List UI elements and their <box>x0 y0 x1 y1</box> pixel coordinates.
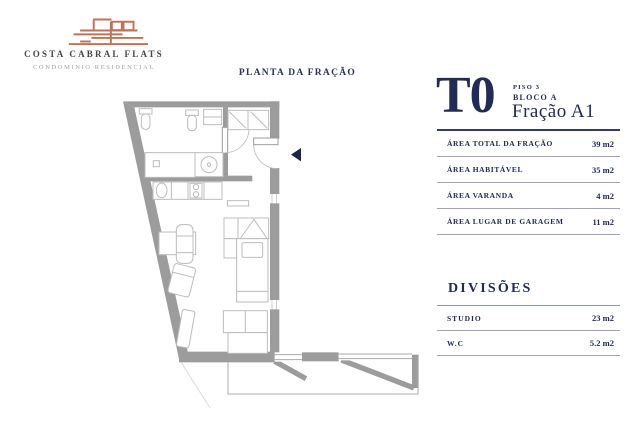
division-value: 23 m2 <box>592 313 614 323</box>
entrance-arrow-icon <box>291 148 301 161</box>
table-row: ÁREA LUGAR DE GARAGEM 11 m2 <box>437 209 620 235</box>
toilet <box>139 109 152 130</box>
unit-type: T0 <box>436 72 495 120</box>
unit-floor: PISO 3 <box>513 84 540 91</box>
radiator <box>227 201 248 206</box>
site-line <box>181 363 210 408</box>
vanity-counter <box>145 153 195 178</box>
table-row: ÁREA HABITÁVEL 35 m2 <box>437 157 620 183</box>
area-label: ÁREA VARANDA <box>447 191 514 200</box>
bed-wardrobe <box>224 218 269 239</box>
bidet <box>186 110 199 131</box>
washing-machine <box>195 153 223 177</box>
divisions-title: DIVISÕES <box>448 281 533 297</box>
area-value: 39 m2 <box>592 139 614 149</box>
table-row: STUDIO 23 m2 <box>437 306 620 331</box>
chair <box>167 263 196 297</box>
wardrobe <box>228 110 269 129</box>
table-row: W.C 5.2 m2 <box>437 331 620 356</box>
windows <box>269 194 412 362</box>
sofa <box>223 311 267 354</box>
brand-tagline: CONDOMINIO RESIDENCIAL <box>18 64 170 71</box>
division-label: STUDIO <box>447 314 482 323</box>
flyer-page: COSTA CABRAL FLATS CONDOMINIO RESIDENCIA… <box>0 0 640 426</box>
unit-fraction: Fração A1 <box>512 101 595 123</box>
nightstand <box>224 239 237 258</box>
division-label: W.C <box>447 339 464 348</box>
armchair <box>176 225 193 264</box>
entry-door <box>254 138 278 169</box>
table-row: ÁREA VARANDA 4 m2 <box>437 183 620 209</box>
area-label: ÁREA TOTAL DA FRAÇÃO <box>447 139 553 148</box>
area-value: 11 m2 <box>593 217 615 227</box>
brand-name: COSTA CABRAL FLATS <box>18 49 170 59</box>
divisions-table: STUDIO 23 m2 W.C 5.2 m2 <box>437 305 620 356</box>
plan-title: PLANTA DA FRAÇÃO <box>225 68 370 78</box>
areas-table: ÁREA TOTAL DA FRAÇÃO 39 m2 ÁREA HABITÁVE… <box>437 131 620 235</box>
division-value: 5.2 m2 <box>590 338 614 348</box>
table-row: ÁREA TOTAL DA FRAÇÃO 39 m2 <box>437 131 620 157</box>
bed <box>237 239 268 302</box>
bathroom-door <box>222 127 249 153</box>
floor-plan-drawing <box>108 92 438 412</box>
entry-closet <box>204 109 222 124</box>
kitchen-counter <box>153 182 222 199</box>
brand-logo-icon <box>60 13 152 47</box>
area-value: 35 m2 <box>592 165 614 175</box>
area-value: 4 m2 <box>596 191 614 201</box>
area-label: ÁREA HABITÁVEL <box>447 165 523 174</box>
area-label: ÁREA LUGAR DE GARAGEM <box>447 217 564 226</box>
